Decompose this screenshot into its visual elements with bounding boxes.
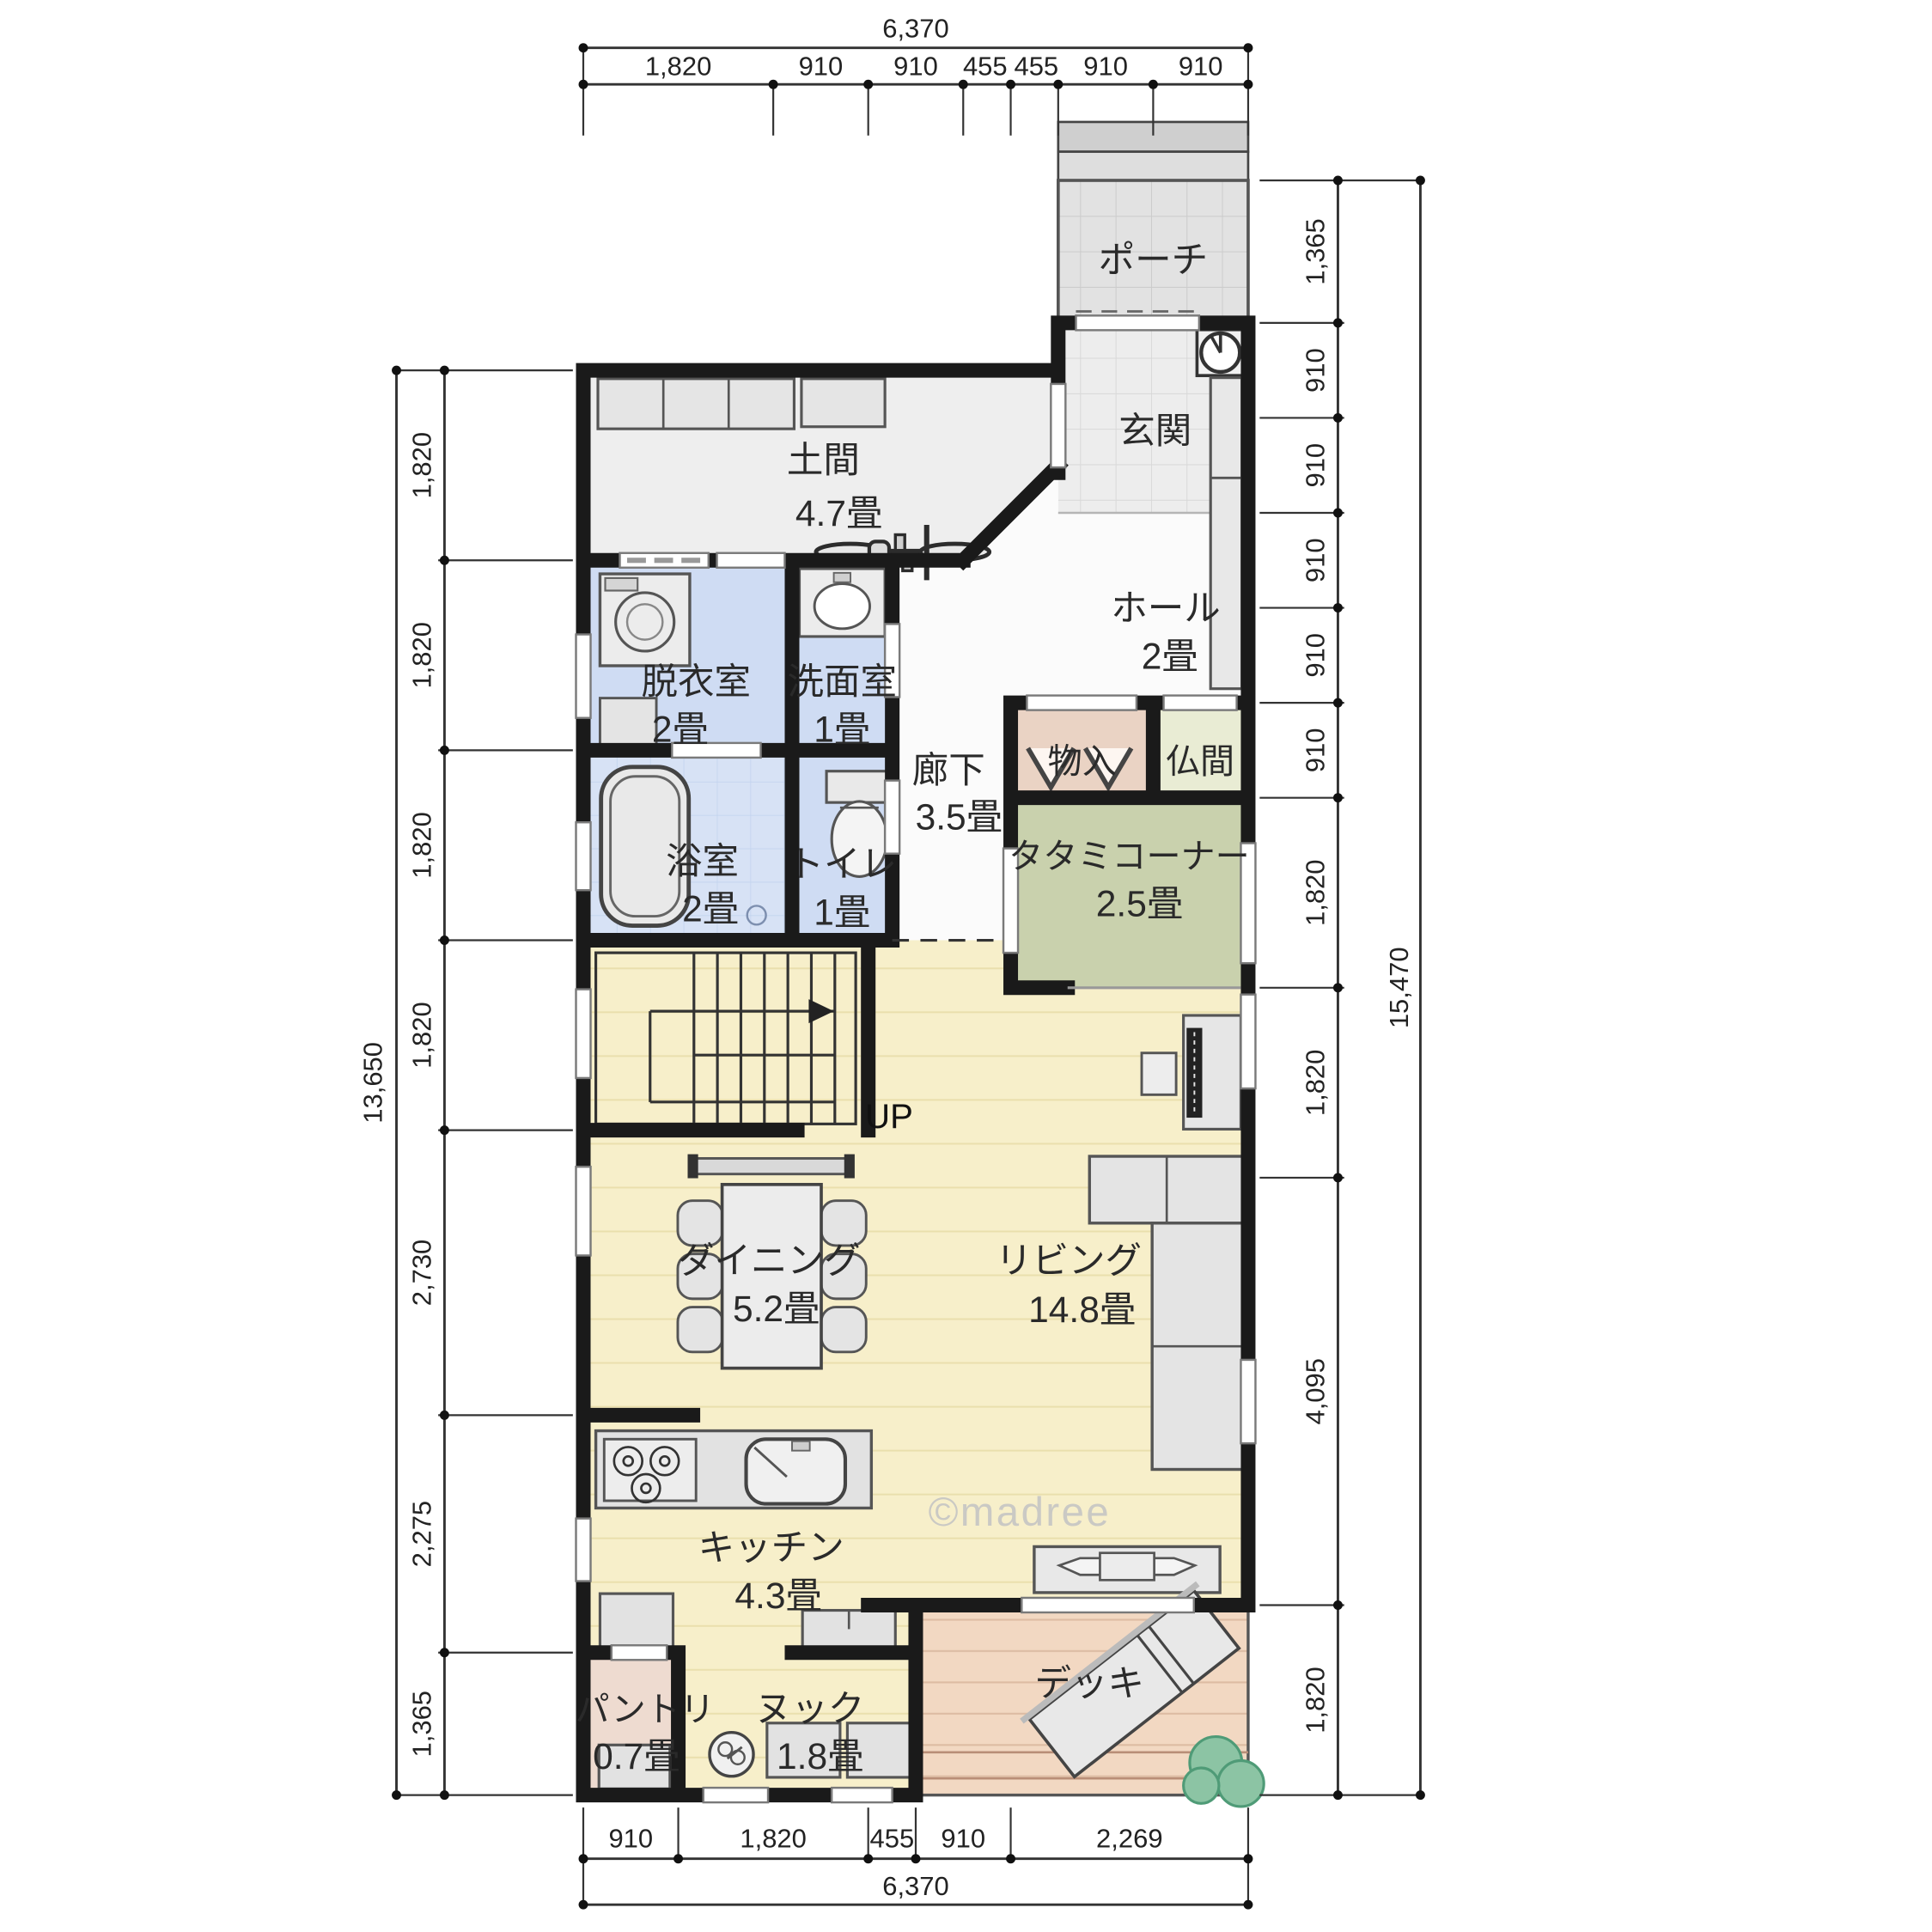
room-label-tatami: タタミコーナー — [1009, 838, 1250, 876]
dim-bottom: 910 1,820 455 910 2,269 6,370 — [579, 1807, 1253, 1909]
doma-corridor-opening — [717, 553, 785, 568]
entry-door — [1076, 315, 1198, 330]
room-area-kitchen: 4.3畳 — [734, 1576, 822, 1617]
kitchen-window — [576, 1519, 590, 1582]
room-label-living: リビング — [996, 1241, 1142, 1282]
room-label-dining: ダイニング — [678, 1241, 861, 1282]
dim-bottom-seg-4: 2,269 — [1096, 1823, 1163, 1853]
dim-right-seg-9: 1,820 — [1301, 1667, 1331, 1733]
nook-stool-icon — [710, 1733, 753, 1777]
dim-left-seg-1: 1,820 — [407, 622, 437, 689]
dim-right-seg-4: 910 — [1301, 633, 1331, 678]
room-label-kitchen: キッチン — [698, 1528, 844, 1569]
dim-top-seg-2: 910 — [893, 51, 938, 81]
dim-top-seg-1: 910 — [799, 51, 844, 81]
room-label-senmen: 洗面室 — [788, 662, 898, 703]
dim-top-seg-3: 455 — [963, 51, 1008, 81]
room-label-nook: ヌック — [755, 1689, 865, 1729]
washbasin-icon — [800, 569, 886, 637]
dim-bottom-seg-2: 455 — [870, 1823, 915, 1853]
dim-right-seg-2: 910 — [1301, 443, 1331, 488]
genkan-stool-icon — [1197, 330, 1244, 375]
room-area-datsui: 2畳 — [652, 710, 709, 751]
room-area-dining: 5.2畳 — [733, 1289, 820, 1330]
room-label-pantry: パントリ — [576, 1691, 715, 1728]
room-label-porch: ポーチ — [1099, 241, 1209, 281]
dim-bottom-seg-0: 910 — [608, 1823, 653, 1853]
dim-left-seg-4: 2,730 — [407, 1240, 437, 1306]
living-window-lower — [1240, 1360, 1255, 1443]
handrail-icon — [688, 1155, 855, 1179]
nook-window-2 — [832, 1788, 892, 1802]
bath-window — [576, 822, 590, 890]
dim-right-seg-3: 910 — [1301, 538, 1331, 582]
room-area-senmen: 1畳 — [814, 710, 870, 751]
watermark: ©madree — [929, 1490, 1112, 1535]
genkan-doma-door — [1051, 384, 1065, 467]
stairs-window — [576, 990, 590, 1078]
dim-bottom-overall: 6,370 — [882, 1871, 949, 1901]
room-label-doma: 土間 — [787, 441, 860, 481]
shoe-cabinet-icon — [1210, 378, 1241, 689]
dim-top: 6,370 1,820 910 910 455 455 910 910 — [579, 14, 1253, 136]
datsui-window — [576, 635, 590, 718]
dim-right-seg-6: 1,820 — [1301, 859, 1331, 926]
floorplan-canvas: ポーチ 玄関 ホール 2畳 土間 4.7畳 脱衣室 2畳 洗面室 1畳 廊下 3… — [0, 0, 1932, 1932]
datsui-door-dashes — [627, 558, 700, 563]
dim-bottom-seg-1: 1,820 — [740, 1823, 806, 1853]
dim-right-seg-1: 910 — [1301, 348, 1331, 393]
dim-top-seg-0: 1,820 — [645, 51, 712, 81]
room-label-mononyu: 物入 — [1048, 743, 1117, 781]
room-area-doma: 4.7畳 — [795, 494, 883, 534]
dim-right: 1,365 910 910 910 910 910 1,820 1,820 4,… — [1259, 176, 1425, 1801]
dim-left-seg-3: 1,820 — [407, 1002, 437, 1069]
dim-bottom-seg-3: 910 — [941, 1823, 985, 1853]
dim-right-seg-5: 910 — [1301, 728, 1331, 773]
room-area-pantry: 0.7畳 — [593, 1737, 680, 1777]
stairs-up-label: UP — [865, 1098, 913, 1136]
nook-window-1 — [704, 1788, 768, 1802]
dim-right-overall: 15,470 — [1384, 947, 1414, 1028]
kitchen-counter-icon — [596, 1431, 872, 1508]
doma-cabinet-icon — [598, 379, 885, 429]
room-area-bath: 2畳 — [682, 890, 739, 930]
porch-canopy-lower — [1058, 152, 1248, 180]
butsuma-door — [1164, 696, 1237, 710]
dim-left: 1,820 1,820 1,820 1,820 2,730 2,275 1,36… — [358, 366, 573, 1800]
dim-right-seg-8: 4,095 — [1301, 1358, 1331, 1424]
dim-top-seg-5: 910 — [1083, 51, 1128, 81]
dim-top-seg-6: 910 — [1179, 51, 1223, 81]
room-label-rouka: 廊下 — [912, 751, 985, 791]
room-area-nook: 1.8畳 — [777, 1737, 864, 1777]
room-area-tatami: 2.5畳 — [1096, 885, 1184, 925]
dining-window — [576, 1167, 590, 1255]
dim-left-seg-2: 1,820 — [407, 812, 437, 879]
room-label-hall: ホール — [1111, 589, 1221, 630]
washing-machine-icon — [600, 574, 689, 666]
living-window-upper — [1240, 995, 1255, 1088]
floorplan-svg: ポーチ 玄関 ホール 2畳 土間 4.7畳 脱衣室 2畳 洗面室 1畳 廊下 3… — [0, 0, 1932, 1932]
room-area-toilet: 1畳 — [814, 893, 870, 933]
dim-left-seg-6: 1,365 — [407, 1691, 437, 1757]
dim-right-seg-0: 1,365 — [1301, 218, 1331, 284]
mononyu-door — [1027, 696, 1137, 710]
plan-group: ポーチ 玄関 ホール 2畳 土間 4.7畳 脱衣室 2畳 洗面室 1畳 廊下 3… — [358, 14, 1425, 1910]
dim-left-seg-0: 1,820 — [407, 432, 437, 499]
room-area-living: 14.8畳 — [1028, 1290, 1136, 1331]
room-label-toilet: トイレ — [788, 844, 898, 885]
room-label-bath: 浴室 — [666, 842, 739, 882]
pantry-door — [612, 1645, 667, 1660]
dim-right-seg-7: 1,820 — [1301, 1050, 1331, 1117]
room-label-datsui: 脱衣室 — [641, 662, 751, 703]
datsui-cabinet-icon — [600, 698, 656, 746]
toilet-door — [885, 781, 899, 854]
room-label-deck: デッキ — [1035, 1664, 1145, 1704]
room-label-genkan: 玄関 — [1118, 411, 1192, 452]
room-area-hall: 2畳 — [1142, 637, 1198, 678]
dim-top-overall: 6,370 — [882, 14, 949, 44]
dim-top-seg-4: 455 — [1014, 51, 1058, 81]
kitchen-cabinet-icon — [600, 1594, 673, 1652]
room-label-butsuma: 仏間 — [1166, 743, 1234, 781]
living-deck-window — [1021, 1598, 1193, 1612]
dim-left-seg-5: 2,275 — [407, 1501, 437, 1567]
room-area-rouka: 3.5畳 — [916, 798, 1003, 838]
bush-icon — [1184, 1737, 1265, 1807]
dim-left-overall: 13,650 — [358, 1042, 388, 1124]
